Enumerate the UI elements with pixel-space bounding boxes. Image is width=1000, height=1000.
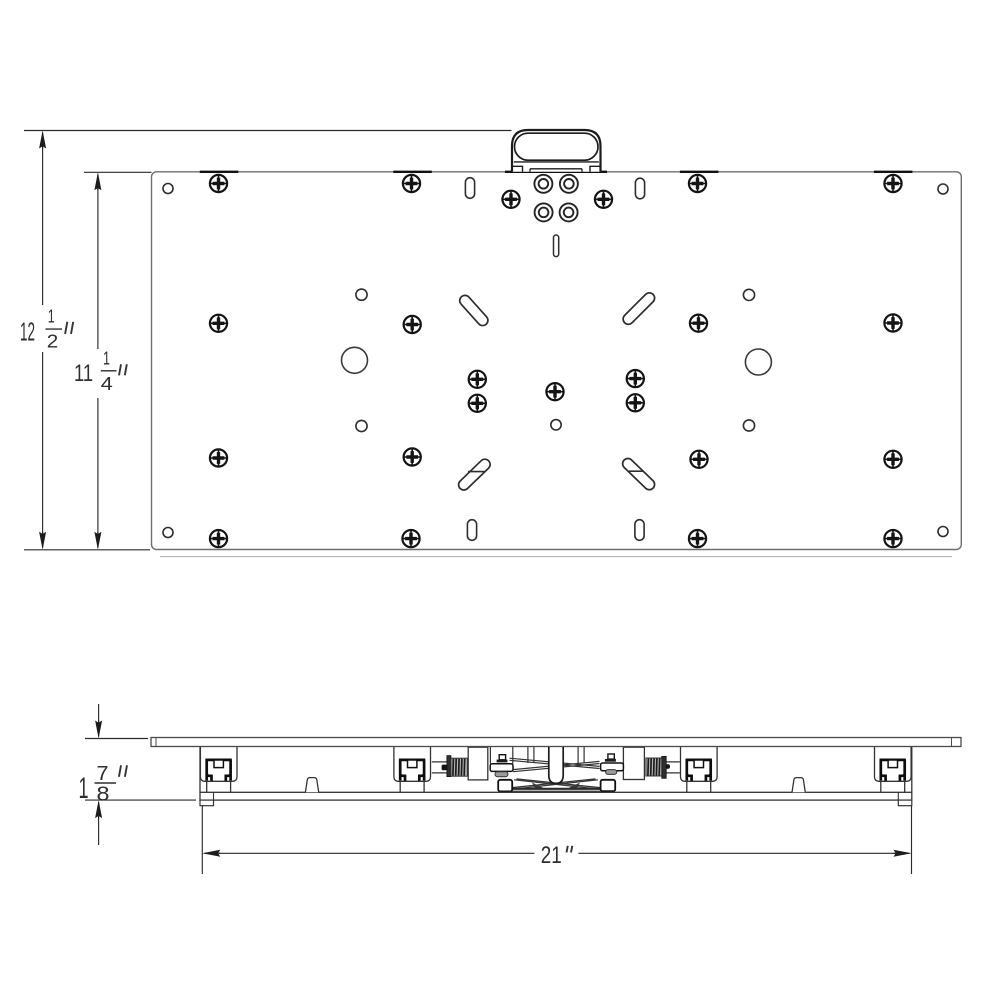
svg-text:12: 12 xyxy=(20,317,35,347)
svg-text:1: 1 xyxy=(79,772,89,805)
svg-text:21: 21 xyxy=(541,842,562,869)
svg-text:1: 1 xyxy=(103,348,110,369)
svg-text:8: 8 xyxy=(97,783,110,806)
svg-text:7: 7 xyxy=(97,762,109,785)
svg-text:2: 2 xyxy=(47,331,59,352)
svg-text:4: 4 xyxy=(101,373,113,394)
svg-text:11: 11 xyxy=(74,360,93,387)
svg-text:1: 1 xyxy=(48,306,55,327)
